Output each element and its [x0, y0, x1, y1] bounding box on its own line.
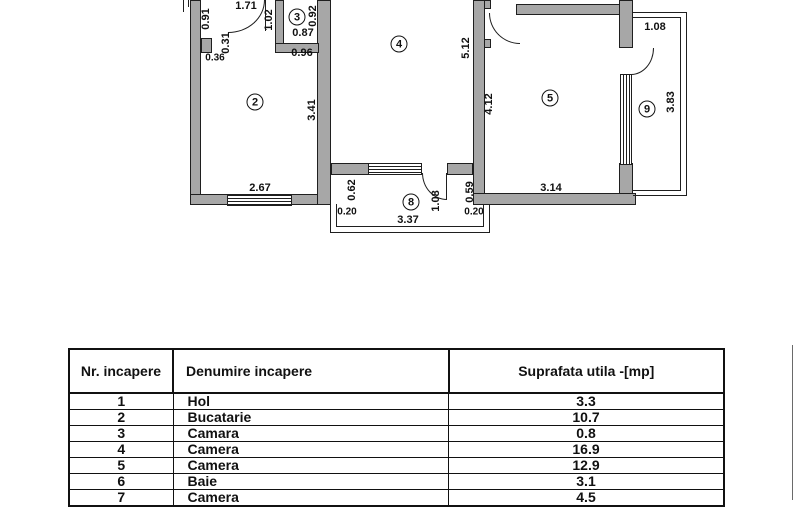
dimension-label: 0.59: [464, 181, 476, 202]
dimension-label: 0.20: [464, 207, 483, 218]
dimension-label: 4.12: [483, 93, 495, 114]
table-row: 3 Camara 0.8: [69, 426, 724, 442]
table-row: 4 Camera 16.9: [69, 442, 724, 458]
wall-room4-bottom-left: [331, 163, 369, 175]
dimension-label: 1.08: [644, 21, 665, 33]
room-number-8: 8: [403, 194, 420, 211]
wall-room5-top: [516, 4, 633, 15]
window-room5-room9: [620, 74, 632, 165]
page-edge-line: [792, 345, 793, 500]
dimension-label: 1.02: [263, 9, 275, 30]
room-number-4: 4: [391, 36, 408, 53]
header-denumire: Denumire incapere: [173, 349, 449, 393]
wall-room5-room9-lower: [619, 163, 633, 194]
wall-left-notch: [201, 38, 212, 53]
table-header-row: Nr. incapere Denumire incapere Suprafata…: [69, 349, 724, 393]
dimension-label: 5.12: [460, 37, 472, 58]
dimension-label: 3.83: [665, 91, 677, 112]
wall-room5-bottom: [473, 193, 636, 205]
door-arc-room5: [489, 13, 520, 44]
header-nr-incapere: Nr. incapere: [69, 349, 173, 393]
room-areas-table: Nr. incapere Denumire incapere Suprafata…: [68, 348, 725, 507]
contour-line-left-b: [188, 0, 189, 7]
wall-left-exterior: [190, 0, 201, 205]
wall-room3-left: [275, 0, 284, 44]
floorplan-page: { "plan": { "rooms": { "r2": "2", "r3": …: [0, 0, 800, 500]
dimension-label: 0.87: [292, 27, 313, 39]
table-row: 1 Hol 3.3: [69, 393, 724, 410]
wall-jamb-door5: [484, 39, 491, 48]
dimension-label: 0.91: [200, 8, 212, 29]
wall-room5-room9-upper: [619, 0, 633, 48]
dimension-label: 3.37: [397, 214, 418, 226]
floor-plan: 2 3 4 5 8 9 0.91 1.71 1.02 0.92 0.87 0.3…: [0, 0, 800, 340]
dimension-label: 0.96: [291, 47, 312, 59]
dimension-label: 3.14: [540, 182, 561, 194]
dimension-label: 3.41: [306, 99, 318, 120]
room-number-3: 3: [289, 9, 306, 26]
wall-middle-vertical: [317, 0, 331, 205]
contour-line-left-a: [183, 0, 184, 12]
dimension-label: 2.67: [249, 182, 270, 194]
dimension-label: 1.08: [430, 190, 442, 211]
header-suprafata: Suprafata utila -[mp]: [449, 349, 725, 393]
table-row: 6 Baie 3.1: [69, 474, 724, 490]
dimension-label: 0.36: [205, 53, 224, 64]
wall-jamb-top: [484, 0, 491, 9]
table-row: 5 Camera 12.9: [69, 458, 724, 474]
wall-room4-bottom-right: [447, 163, 473, 175]
dimension-label: 0.31: [220, 32, 232, 53]
window-room2: [227, 195, 292, 206]
table-row: 2 Bucatarie 10.7: [69, 410, 724, 426]
dimension-label: 0.62: [346, 179, 358, 200]
dimension-label: 1.71: [235, 0, 256, 12]
room-number-2: 2: [247, 94, 264, 111]
room-number-9: 9: [639, 101, 656, 118]
dimension-label: 0.92: [307, 5, 319, 26]
room-number-5: 5: [542, 90, 559, 107]
dimension-label: 0.20: [337, 207, 356, 218]
window-room8: [368, 163, 422, 175]
table-row: 7 Camera 4.5: [69, 490, 724, 507]
